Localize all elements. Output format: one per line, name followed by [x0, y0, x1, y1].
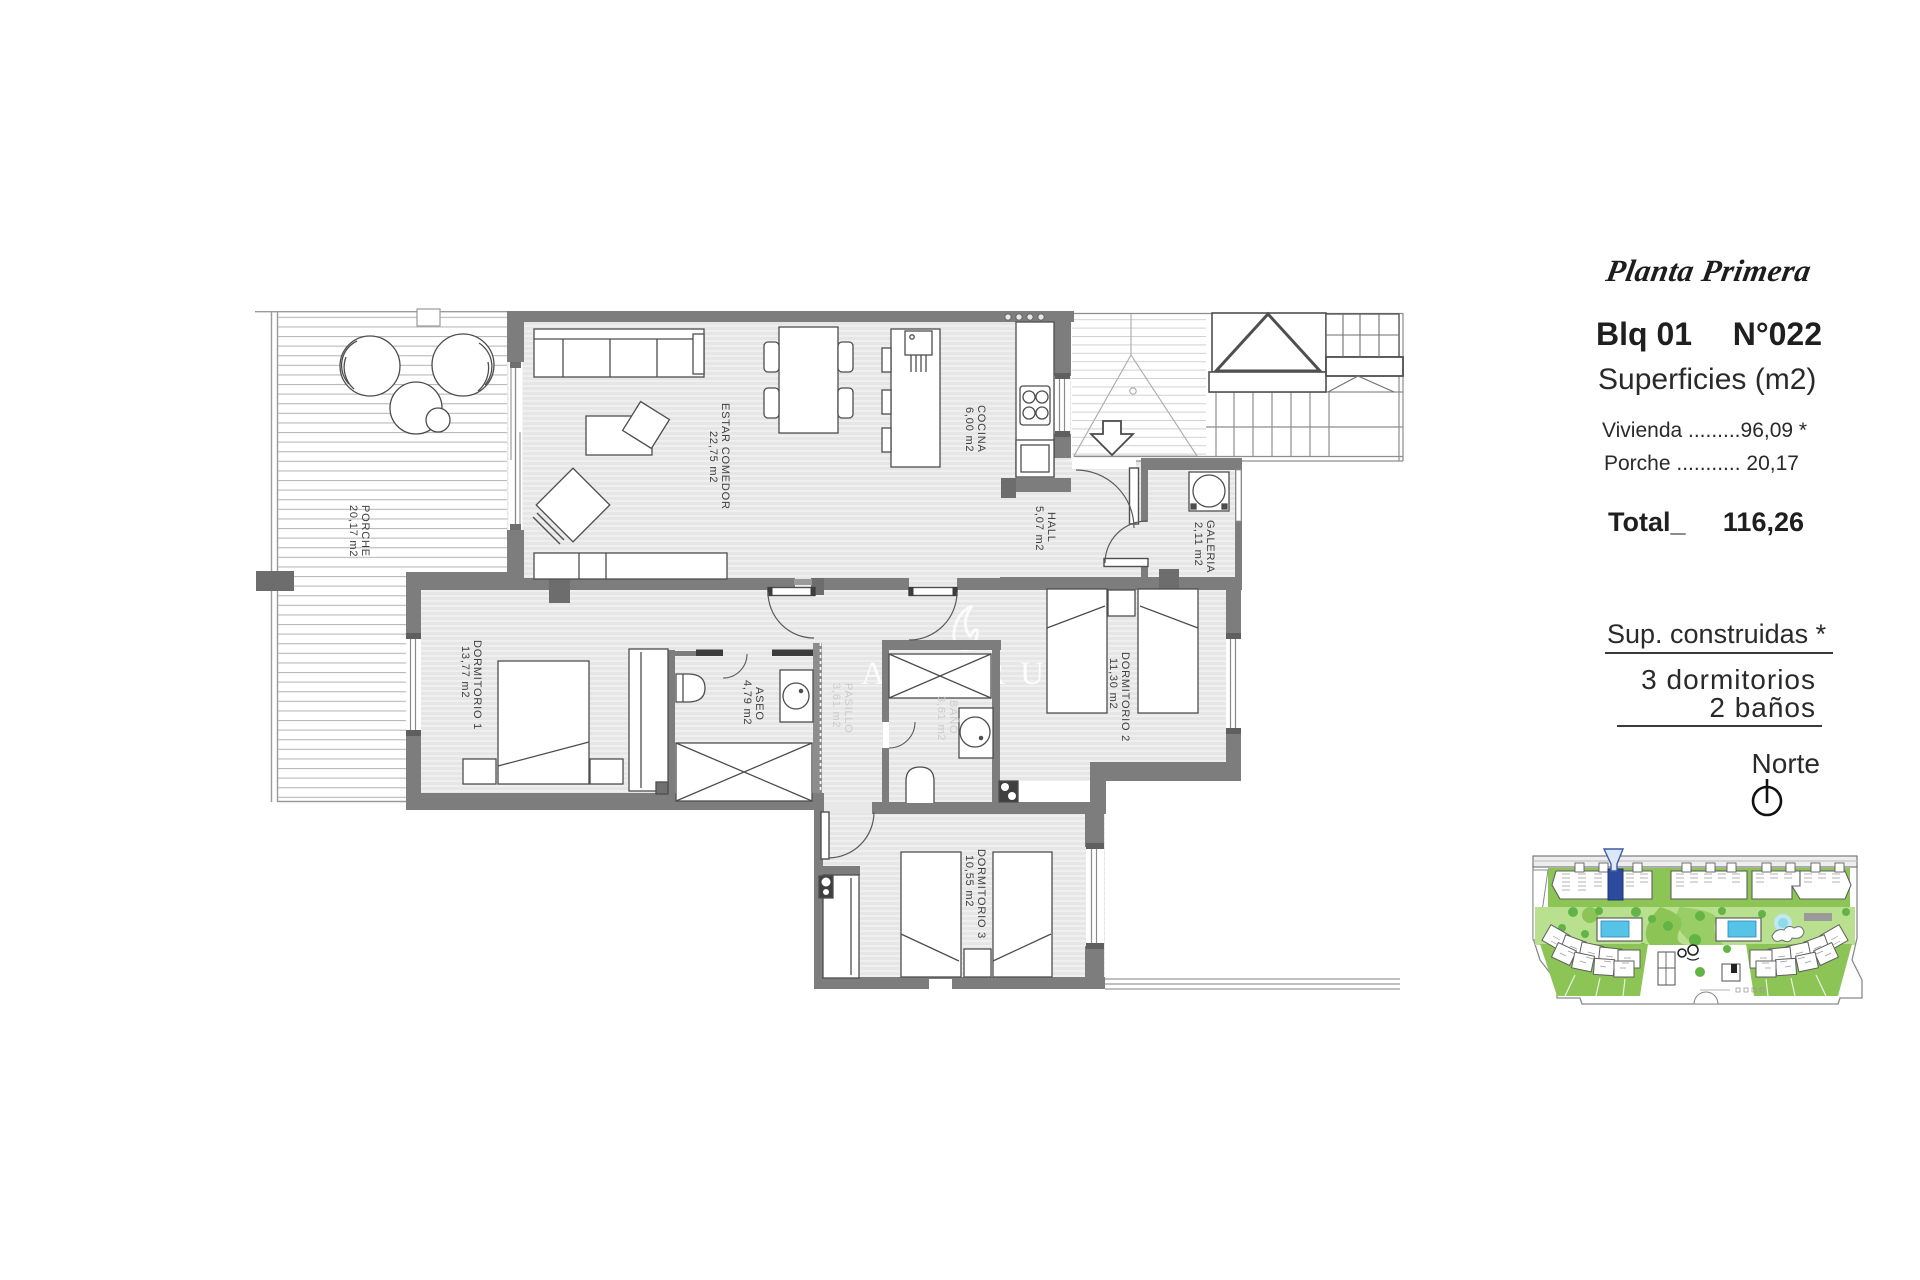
- svg-text:PORCHE20,17 m2: PORCHE20,17 m2: [347, 505, 371, 557]
- svg-text:3 dormitorios: 3 dormitorios: [1641, 664, 1816, 695]
- svg-text:COCINA6,00 m2: COCINA6,00 m2: [963, 405, 987, 453]
- svg-text:Blq 01: Blq 01: [1596, 316, 1692, 352]
- svg-text:Vivienda .........96,09 *: Vivienda .........96,09 *: [1602, 419, 1807, 442]
- svg-text:PASILLO3,61 m2: PASILLO3,61 m2: [830, 683, 854, 734]
- svg-text:ASEO4,79 m2: ASEO4,79 m2: [741, 680, 765, 725]
- svg-text:GALERIA2,11 m2: GALERIA2,11 m2: [1192, 520, 1216, 573]
- svg-text:2 baños: 2 baños: [1709, 692, 1816, 723]
- svg-text:Total_: Total_: [1608, 507, 1686, 537]
- svg-text:N°022: N°022: [1733, 316, 1822, 352]
- svg-text:Sup. construidas *: Sup. construidas *: [1607, 619, 1827, 649]
- svg-text:Norte: Norte: [1752, 748, 1820, 779]
- svg-text:Planta Primera: Planta Primera: [1603, 253, 1814, 288]
- svg-text:Superficies (m2): Superficies (m2): [1598, 363, 1816, 396]
- svg-text:116,26: 116,26: [1723, 507, 1804, 537]
- svg-text:Porche ........... 20,17: Porche ........... 20,17: [1604, 452, 1799, 475]
